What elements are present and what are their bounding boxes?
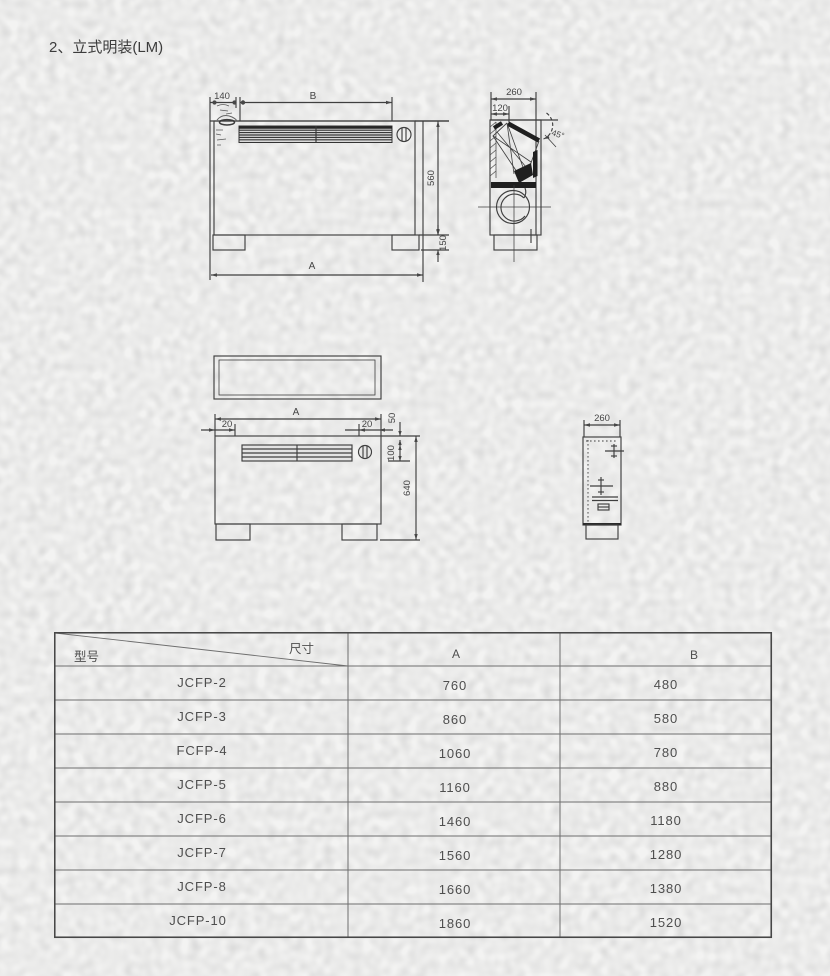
svg-text:JCFP-10: JCFP-10 [169, 913, 227, 928]
svg-text:140: 140 [214, 91, 230, 102]
svg-text:860: 860 [443, 712, 467, 727]
svg-text:JCFP-8: JCFP-8 [177, 879, 226, 894]
svg-text:760: 760 [443, 678, 467, 693]
svg-text:A: A [452, 647, 460, 661]
svg-text:1860: 1860 [439, 916, 472, 931]
svg-text:20: 20 [222, 419, 233, 430]
svg-text:45°: 45° [550, 127, 565, 140]
svg-text:580: 580 [654, 711, 678, 726]
svg-text:1280: 1280 [650, 847, 683, 862]
svg-text:1460: 1460 [439, 814, 472, 829]
svg-text:JCFP-6: JCFP-6 [177, 811, 226, 826]
svg-text:260: 260 [506, 87, 522, 98]
svg-text:JCFP-2: JCFP-2 [177, 675, 226, 690]
svg-text:A: A [309, 261, 316, 272]
svg-text:120: 120 [492, 103, 508, 114]
svg-text:A: A [293, 407, 300, 418]
svg-text:880: 880 [654, 779, 678, 794]
svg-text:50: 50 [387, 413, 398, 424]
svg-text:100: 100 [386, 445, 397, 461]
svg-text:780: 780 [654, 745, 678, 760]
svg-text:560: 560 [426, 170, 437, 186]
svg-text:1520: 1520 [650, 915, 683, 930]
svg-text:260: 260 [594, 413, 610, 424]
svg-text:1380: 1380 [650, 881, 683, 896]
svg-text:1560: 1560 [439, 848, 472, 863]
svg-text:尺寸: 尺寸 [289, 642, 314, 656]
svg-text:1060: 1060 [439, 746, 472, 761]
svg-text:1160: 1160 [439, 780, 471, 795]
svg-text:150: 150 [438, 235, 449, 251]
svg-text:FCFP-4: FCFP-4 [177, 743, 228, 758]
svg-text:480: 480 [654, 677, 678, 692]
svg-text:B: B [310, 91, 317, 102]
svg-text:1660: 1660 [439, 882, 472, 897]
svg-text:型号: 型号 [74, 650, 99, 664]
svg-text:20: 20 [362, 419, 373, 430]
svg-text:1180: 1180 [650, 813, 682, 828]
svg-text:B: B [690, 648, 698, 662]
svg-text:JCFP-5: JCFP-5 [177, 777, 226, 792]
svg-text:640: 640 [402, 480, 413, 496]
svg-text:JCFP-7: JCFP-7 [177, 845, 226, 860]
svg-text:JCFP-3: JCFP-3 [177, 709, 226, 724]
